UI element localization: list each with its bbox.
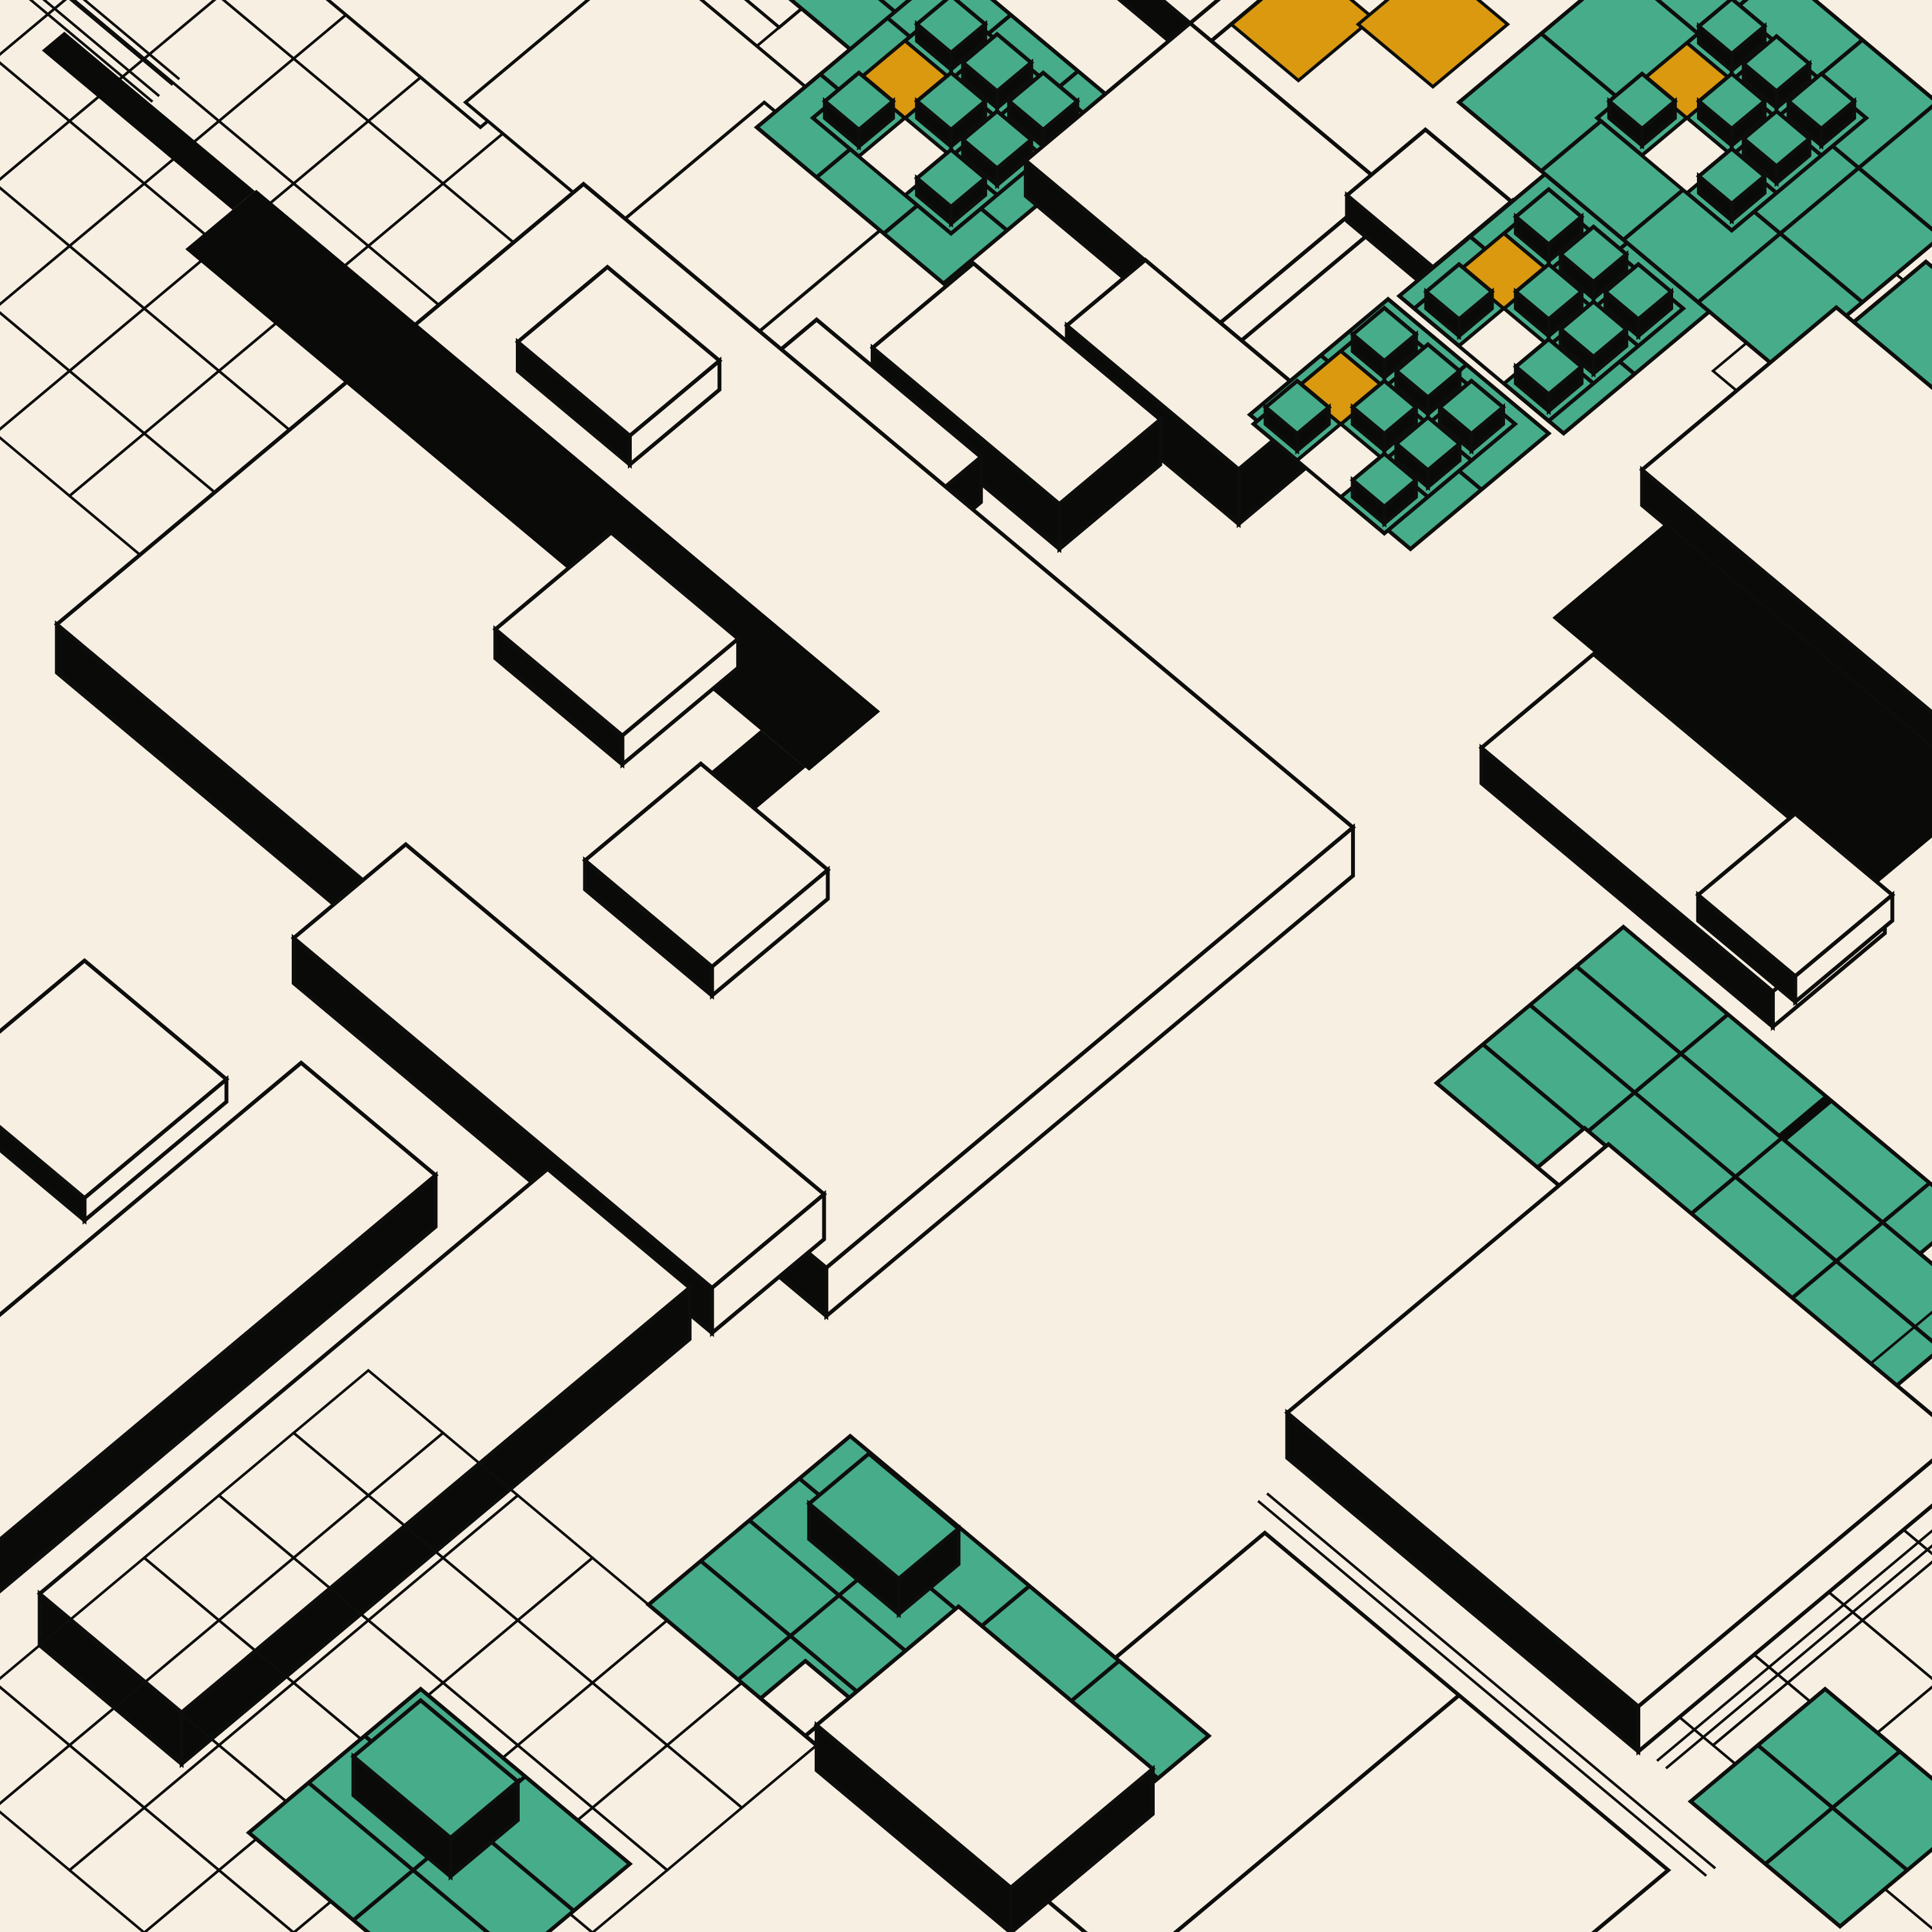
artwork-stage [0,0,1932,1932]
isometric-artwork-canvas [0,0,1932,1932]
